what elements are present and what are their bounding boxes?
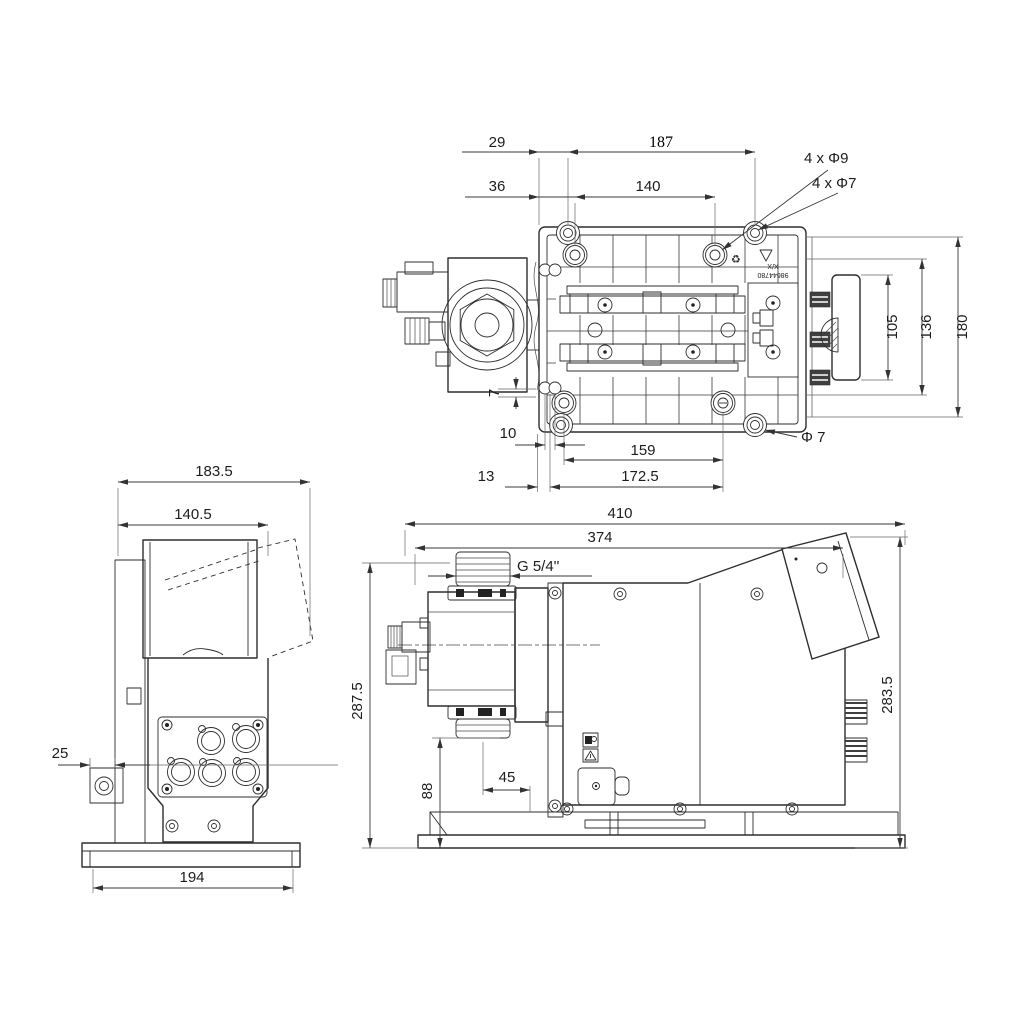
svg-text:187: 187 <box>649 134 673 151</box>
side-cable-gland <box>386 622 430 684</box>
top-valve-fitting <box>405 318 450 366</box>
side-housing <box>546 533 879 817</box>
svg-text:29: 29 <box>489 134 506 151</box>
svg-text:374: 374 <box>587 529 612 546</box>
top-rail-and-cover <box>810 237 860 417</box>
callout-4xphi7: 4 x Φ7 <box>757 175 857 232</box>
callout-phi7: Φ 7 <box>764 427 825 446</box>
svg-text:183.5: 183.5 <box>195 463 233 480</box>
front-connector-panel <box>158 717 267 797</box>
svg-text:4 x Φ7: 4 x Φ7 <box>812 175 857 192</box>
dim-283-5: 283.5 <box>879 537 903 848</box>
svg-text:25: 25 <box>52 745 69 762</box>
front-wall-bracket <box>90 768 123 803</box>
svg-text:172.5: 172.5 <box>621 468 659 485</box>
svg-text:Φ 7: Φ 7 <box>801 429 825 446</box>
dim-172-5: 172.5 <box>550 468 723 490</box>
suction-thread-top <box>448 552 516 600</box>
svg-text:7: 7 <box>486 389 503 397</box>
svg-text:140.5: 140.5 <box>174 506 212 523</box>
svg-text:45: 45 <box>499 769 516 786</box>
front-view-dimensions: 183.5 140.5 25 194 <box>52 463 338 893</box>
plate-marking-line2: 98644780 <box>757 271 788 278</box>
dimensional-drawing: ♻ X/X 98644780 <box>0 0 1024 1024</box>
top-view: ♻ X/X 98644780 <box>383 134 971 492</box>
dim-187: 187 <box>568 134 755 155</box>
dim-88: 88 <box>419 738 443 848</box>
svg-text:410: 410 <box>607 505 632 522</box>
technical-drawing-page: ♻ X/X 98644780 <box>0 0 1024 1024</box>
mounting-plate: ♻ X/X 98644780 <box>534 222 806 437</box>
top-cable-gland <box>383 262 448 312</box>
dim-183-5: 183.5 <box>118 463 310 485</box>
svg-text:283.5: 283.5 <box>879 676 896 714</box>
svg-text:287.5: 287.5 <box>349 682 366 720</box>
front-view: 183.5 140.5 25 194 <box>52 463 338 893</box>
warning-triangle-icon <box>760 250 772 261</box>
control-panel-slab <box>782 533 879 659</box>
dim-29: 29 <box>462 134 568 155</box>
dim-140-5: 140.5 <box>118 506 268 528</box>
svg-text:13: 13 <box>478 468 495 485</box>
dim-159: 159 <box>564 442 723 463</box>
dim-374: 374 <box>415 529 843 551</box>
dim-140: 140 <box>575 178 715 200</box>
side-base <box>418 803 905 848</box>
side-view: 410 374 G 5/4'' 287.5 88 45 283.5 <box>349 505 908 848</box>
dim-13: 13 <box>478 468 538 490</box>
recycle-icon: ♻ <box>731 253 741 266</box>
svg-text:105: 105 <box>884 314 901 339</box>
svg-text:4 x Φ9: 4 x Φ9 <box>804 150 849 167</box>
svg-text:36: 36 <box>489 178 506 195</box>
svg-text:136: 136 <box>918 314 935 339</box>
dim-410: 410 <box>405 505 905 527</box>
top-pump-head <box>383 258 539 392</box>
plate-marking-line1: X/X <box>767 262 779 269</box>
dim-194: 194 <box>93 869 293 891</box>
dim-287-5: 287.5 <box>349 563 373 848</box>
side-square-connector <box>578 768 629 805</box>
dim-36: 36 <box>465 178 575 200</box>
front-base <box>82 843 300 867</box>
discharge-thread-bottom <box>448 706 516 738</box>
svg-text:10: 10 <box>500 425 517 442</box>
dim-45: 45 <box>483 769 530 793</box>
dim-7: 7 <box>486 377 519 409</box>
dim-180: 180 <box>954 237 971 417</box>
warning-label <box>583 733 598 762</box>
dim-25: 25 <box>52 745 150 768</box>
open-lid-dashed <box>258 539 313 656</box>
svg-text:194: 194 <box>179 869 204 886</box>
dim-136: 136 <box>918 259 935 395</box>
svg-text:159: 159 <box>630 442 655 459</box>
svg-text:88: 88 <box>419 783 436 800</box>
dim-105: 105 <box>884 275 901 380</box>
svg-text:G 5/4'': G 5/4'' <box>517 558 560 575</box>
svg-text:140: 140 <box>635 178 660 195</box>
svg-text:180: 180 <box>954 314 971 339</box>
